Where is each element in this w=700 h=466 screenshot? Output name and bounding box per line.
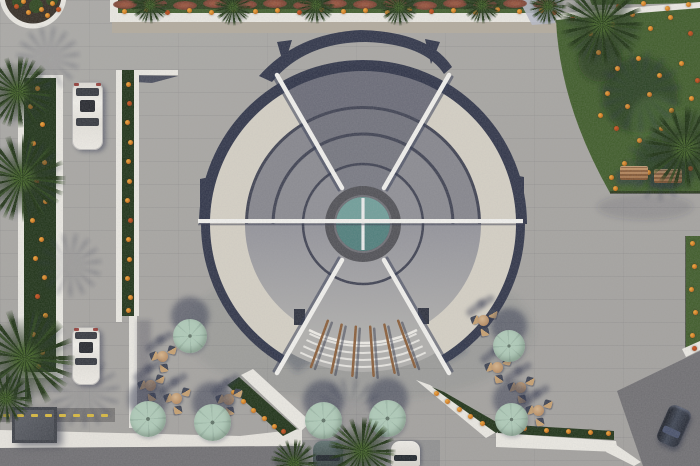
garden-bench xyxy=(620,166,648,180)
flower xyxy=(272,424,277,429)
flower xyxy=(50,1,55,6)
wall-corner xyxy=(606,442,641,466)
speed-bump-dash xyxy=(73,414,80,417)
flower xyxy=(40,122,45,127)
flower xyxy=(566,429,571,434)
flower xyxy=(122,9,127,14)
windshield xyxy=(75,358,96,365)
flower xyxy=(14,4,19,9)
flower xyxy=(126,159,131,164)
cafe-table xyxy=(478,315,489,326)
flower xyxy=(39,7,44,12)
equator-line-shadow xyxy=(198,224,523,226)
flower xyxy=(341,9,346,14)
road xyxy=(617,351,700,466)
umbrella xyxy=(194,404,231,441)
cafe-table xyxy=(533,405,544,416)
curb xyxy=(134,70,139,316)
flower xyxy=(686,2,691,7)
flower xyxy=(544,428,549,433)
flower xyxy=(126,237,131,242)
flower xyxy=(692,264,697,269)
flower xyxy=(613,186,618,191)
flower xyxy=(262,416,267,421)
umbrella xyxy=(173,319,207,353)
flower xyxy=(690,241,695,246)
palm-shadow xyxy=(36,231,104,299)
speed-bump-dash xyxy=(59,414,66,417)
flower xyxy=(21,0,26,4)
car-white xyxy=(72,327,100,385)
flower xyxy=(695,78,700,83)
circular-planter xyxy=(2,0,64,26)
flower xyxy=(648,26,653,31)
flower xyxy=(39,237,44,242)
flower xyxy=(679,61,684,66)
flower xyxy=(668,15,673,20)
flower xyxy=(125,276,130,281)
flower xyxy=(126,82,131,87)
speed-bump-dash xyxy=(31,414,38,417)
flower xyxy=(187,8,192,13)
flower xyxy=(56,7,61,12)
chair xyxy=(535,417,544,426)
flower xyxy=(429,9,434,14)
flower xyxy=(480,421,485,426)
gravel-strip xyxy=(112,21,560,33)
flower xyxy=(451,8,456,13)
cafe-table xyxy=(492,362,503,373)
aerial-render-canvas xyxy=(0,0,700,466)
road xyxy=(0,446,302,466)
flower xyxy=(609,175,614,180)
taillight xyxy=(96,83,101,86)
flower xyxy=(281,429,286,434)
taillight xyxy=(93,328,98,331)
flower xyxy=(128,218,133,223)
flower xyxy=(127,101,132,106)
rear-window xyxy=(75,332,96,338)
bottom-right-road xyxy=(617,341,700,466)
taillight xyxy=(74,328,79,331)
windshield xyxy=(394,455,417,461)
flower xyxy=(689,96,694,101)
flower xyxy=(445,399,450,404)
flower xyxy=(275,8,280,13)
chair xyxy=(480,327,489,336)
flower xyxy=(253,9,258,14)
flower xyxy=(457,407,462,412)
flower xyxy=(125,120,130,125)
speed-bump-dash xyxy=(101,414,108,417)
flower xyxy=(434,391,439,396)
curb xyxy=(116,70,122,322)
sunroof xyxy=(80,100,96,112)
taillight xyxy=(74,83,79,86)
flower xyxy=(689,287,694,292)
flower xyxy=(26,10,31,15)
equator-line xyxy=(198,219,523,223)
flower xyxy=(690,333,695,338)
umbrella xyxy=(130,401,166,437)
flower xyxy=(693,310,698,315)
flower xyxy=(588,430,593,435)
flower xyxy=(363,8,368,13)
umbrella xyxy=(493,330,525,362)
flower xyxy=(45,13,50,18)
flower xyxy=(692,346,697,351)
flower xyxy=(665,6,670,11)
rear-window xyxy=(76,88,100,95)
flower xyxy=(128,295,133,300)
flower xyxy=(251,408,256,413)
shrub xyxy=(173,1,197,10)
flower xyxy=(688,31,693,36)
flower xyxy=(241,399,246,404)
umbrella xyxy=(495,403,528,436)
flower xyxy=(35,294,40,299)
car-white xyxy=(72,82,103,150)
speed-bump-dash xyxy=(45,414,52,417)
flower xyxy=(128,140,133,145)
cafe-table xyxy=(171,393,182,404)
flower xyxy=(127,179,132,184)
speed-bump-dash xyxy=(87,414,94,417)
windshield xyxy=(662,425,681,438)
windshield xyxy=(76,118,100,126)
sunroof xyxy=(79,342,93,352)
flower xyxy=(517,9,522,14)
flower xyxy=(209,10,214,15)
flower xyxy=(468,414,473,419)
chair xyxy=(173,405,182,414)
flower xyxy=(125,198,130,203)
flower xyxy=(126,308,131,313)
flower xyxy=(127,257,132,262)
flower xyxy=(606,431,611,436)
flower xyxy=(641,1,646,6)
